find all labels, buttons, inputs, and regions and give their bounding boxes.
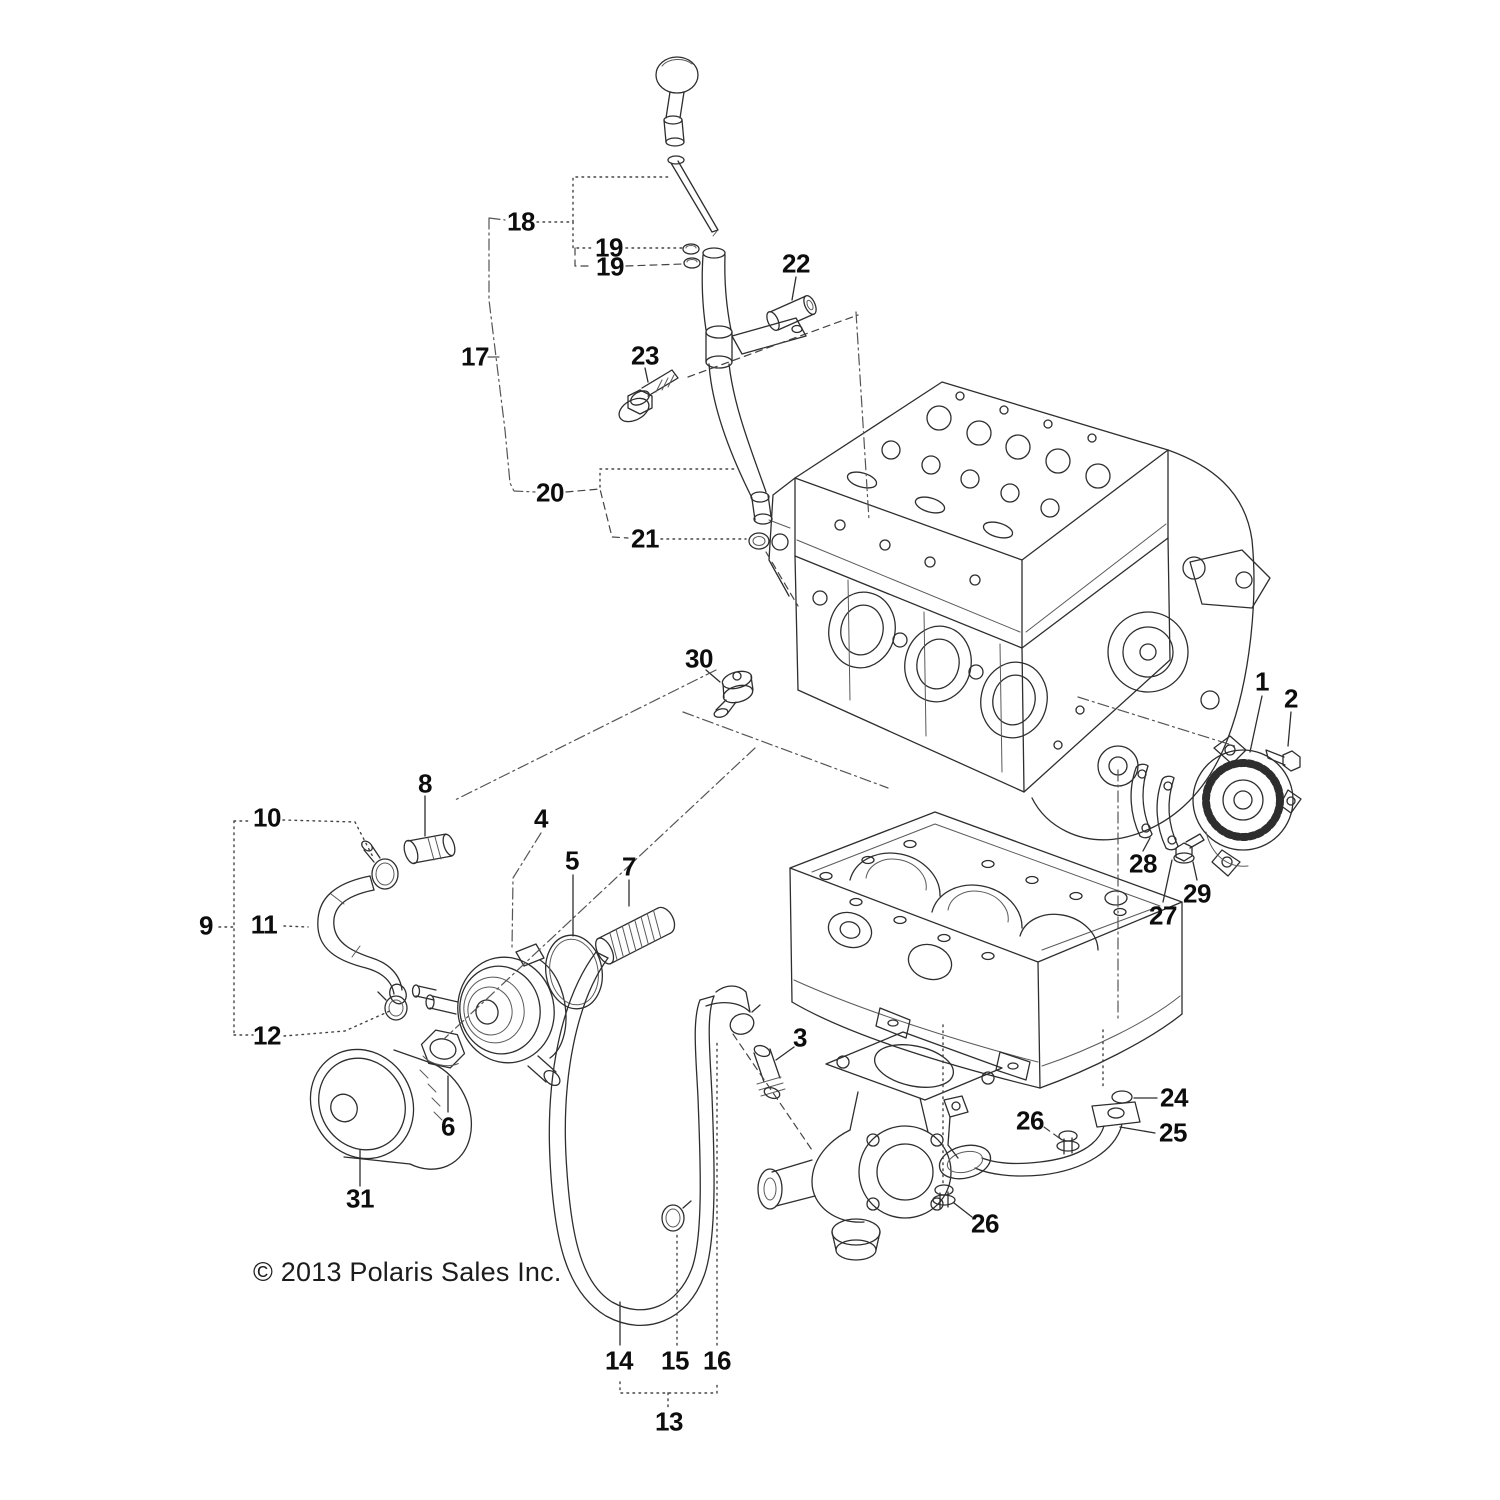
clamp-12-drawing <box>378 992 407 1020</box>
callout-8: 8 <box>418 769 432 800</box>
fitting-8-drawing <box>402 833 458 865</box>
oil-pump-drawing <box>1193 736 1301 876</box>
clamp-15-drawing <box>662 1201 691 1231</box>
bracket-28-drawing <box>1131 764 1152 837</box>
callout-6: 6 <box>441 1112 455 1143</box>
callout-9: 9 <box>199 911 213 942</box>
callout-20: 20 <box>536 478 564 509</box>
callout-19b: 19 <box>596 252 624 283</box>
oring-21-drawing <box>749 533 769 549</box>
oring-5-drawing <box>540 931 608 1014</box>
fitting-3-drawing <box>753 1044 785 1101</box>
callout-13: 13 <box>655 1407 683 1438</box>
nut-6-drawing <box>418 1028 468 1070</box>
callout-7: 7 <box>622 852 636 883</box>
exploded-diagram-artwork <box>0 0 1500 1500</box>
copyright-text: © 2013 Polaris Sales Inc. <box>253 1257 562 1288</box>
callout-16: 16 <box>703 1346 731 1377</box>
oil-pan-drawing <box>790 812 1182 1088</box>
oring-19-upper-drawing <box>683 244 699 254</box>
callout-10: 10 <box>253 803 281 834</box>
dipstick-tube-drawing <box>702 248 806 524</box>
dipstick-drawing <box>656 57 718 236</box>
callout-15: 15 <box>661 1346 689 1377</box>
callout-31: 31 <box>346 1184 374 1215</box>
callout-24: 24 <box>1160 1083 1188 1114</box>
callout-12: 12 <box>253 1021 281 1052</box>
callout-23: 23 <box>631 341 659 372</box>
callout-26a: 26 <box>1016 1106 1044 1137</box>
bolt-26-upper-drawing <box>1057 1131 1079 1154</box>
spring-7-drawing <box>592 904 679 967</box>
callout-17: 17 <box>461 342 489 373</box>
callout-29: 29 <box>1183 879 1211 910</box>
callout-14: 14 <box>605 1346 633 1377</box>
oring-19-lower-drawing <box>684 258 700 268</box>
clamp-16-drawing <box>727 1005 760 1038</box>
callout-21: 21 <box>631 524 659 555</box>
callout-18: 18 <box>507 207 535 238</box>
callout-1: 1 <box>1255 667 1269 698</box>
parts-diagram-page: 1234567891011121314151617181919202122232… <box>0 0 1500 1500</box>
callout-30: 30 <box>685 644 713 675</box>
callout-11: 11 <box>251 910 278 941</box>
hose-11-drawing <box>318 876 409 1006</box>
callout-2: 2 <box>1284 684 1298 715</box>
callout-3: 3 <box>793 1023 807 1054</box>
callout-4: 4 <box>534 804 548 835</box>
callout-25: 25 <box>1159 1118 1187 1149</box>
callout-26b: 26 <box>971 1209 999 1240</box>
oring-24-drawing <box>1112 1091 1132 1103</box>
oil-pressure-sensor-drawing <box>713 668 754 718</box>
clamp-10-drawing <box>360 839 398 889</box>
bolt-2-drawing <box>1266 750 1300 771</box>
oil-filter-31-drawing <box>291 1031 472 1178</box>
callout-5: 5 <box>565 846 579 877</box>
pump-oring-drawing <box>1105 891 1127 905</box>
callout-22: 22 <box>782 249 810 280</box>
callout-28: 28 <box>1129 849 1157 880</box>
leader-lines <box>219 177 1291 1407</box>
callout-27: 27 <box>1149 901 1177 932</box>
oil-cooler-4-drawing <box>413 944 567 1088</box>
bolt-29-drawing <box>1174 834 1204 863</box>
